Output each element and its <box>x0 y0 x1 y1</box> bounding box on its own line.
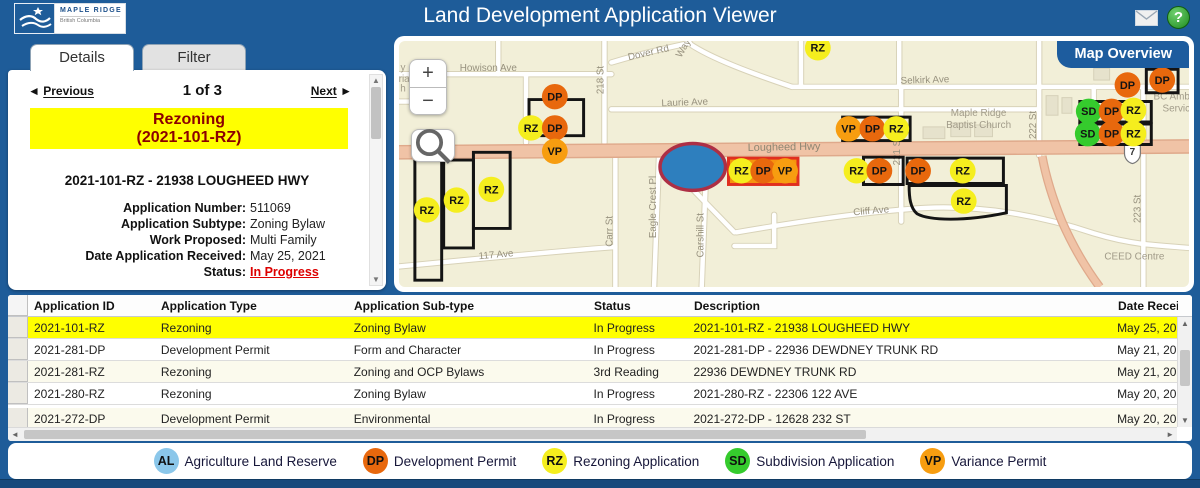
svg-text:DP: DP <box>865 124 880 136</box>
application-address: 2021-101-RZ - 21938 LOUGHEED HWY <box>18 173 356 188</box>
map-search-button[interactable] <box>411 129 455 162</box>
scroll-left-icon[interactable]: ◄ <box>11 430 19 439</box>
map-marker-rz[interactable]: RZ <box>1121 98 1147 123</box>
svg-text:DP: DP <box>547 92 562 104</box>
poi-label: Maple Ridge <box>951 108 1007 119</box>
column-header[interactable]: Status <box>588 295 688 316</box>
table-cell: 2021-272-DP - 12628 232 ST <box>687 408 1111 427</box>
previous-arrow-icon: ◄ <box>28 84 40 98</box>
banner-title: Rezoning <box>30 111 348 129</box>
table-cell: 3rd Reading <box>588 361 688 382</box>
table-cell: Development Permit <box>155 339 348 360</box>
app-header: MAPLE RIDGE British Columbia Land Develo… <box>0 0 1200 38</box>
map-marker-vp[interactable]: VP <box>542 139 568 164</box>
poi-label: CEED Centre <box>1104 252 1165 263</box>
map-overview-button[interactable]: Map Overview <box>1057 41 1189 68</box>
street-label: 223 St <box>1132 195 1143 223</box>
map-marker-rz[interactable]: RZ <box>844 158 870 183</box>
row-selector[interactable] <box>8 339 28 360</box>
legend-label: Subdivision Application <box>756 454 894 469</box>
field-value: Zoning Bylaw <box>250 216 356 232</box>
map-marker-rz[interactable]: RZ <box>883 116 909 141</box>
street-label: 222 St <box>1028 111 1039 139</box>
table-cell: Development Permit <box>155 408 348 427</box>
highway-7-label: 7 <box>1130 147 1136 158</box>
field-label: Application Number: <box>14 200 246 216</box>
table-vscroll-thumb[interactable] <box>1180 350 1190 386</box>
banner-id: (2021-101-RZ) <box>30 129 348 147</box>
svg-text:RZ: RZ <box>811 43 826 55</box>
previous-button[interactable]: ◄ Previous <box>28 84 94 98</box>
table-cell: 2021-101-RZ <box>28 317 155 338</box>
street-label: Selkirk Ave <box>900 74 950 87</box>
svg-text:RZ: RZ <box>955 166 970 178</box>
table-cell: 2021-281-DP - 22936 DEWDNEY TRUNK RD <box>687 339 1111 360</box>
selected-parcel-ellipse[interactable] <box>660 144 726 191</box>
application-field-row: Application Subtype:Zoning Bylaw <box>14 216 356 232</box>
svg-text:DP: DP <box>910 166 925 178</box>
table-vertical-scrollbar[interactable]: ▲ ▼ <box>1177 317 1192 427</box>
table-hscroll-thumb[interactable] <box>24 430 866 439</box>
field-label: Date Application Received: <box>14 248 246 264</box>
legend-label: Development Permit <box>394 454 516 469</box>
street-label: Lougheed Hwy <box>748 141 822 154</box>
svg-text:SD: SD <box>1080 129 1095 141</box>
svg-text:VP: VP <box>548 146 563 158</box>
table-row[interactable]: 2021-281-RZRezoningZoning and OCP Bylaws… <box>8 361 1177 383</box>
table-cell: In Progress <box>588 383 688 404</box>
legend-label: Variance Permit <box>951 454 1046 469</box>
table-cell: 2021-281-DP <box>28 339 155 360</box>
table-cell: Zoning Bylaw <box>348 383 588 404</box>
table-row[interactable]: 2021-272-DPDevelopment PermitEnvironment… <box>8 408 1177 427</box>
maple-ridge-logo-icon <box>14 3 54 34</box>
svg-text:RZ: RZ <box>1126 105 1141 117</box>
header-gutter <box>8 295 28 316</box>
svg-text:SD: SD <box>1081 106 1096 118</box>
poi-label: Service <box>1163 103 1189 114</box>
maple-ridge-logo: MAPLE RIDGE British Columbia <box>14 3 126 34</box>
table-cell: May 20, 2021 <box>1111 408 1177 427</box>
table-cell: May 21, 2021 <box>1111 339 1177 360</box>
legend-marker-icon: SD <box>725 448 750 474</box>
map-legend: ALAgriculture Land ReserveDPDevelopment … <box>8 443 1192 479</box>
bottom-strip <box>0 479 1200 488</box>
map-marker-dp[interactable]: DP <box>1149 67 1175 92</box>
table-row[interactable]: 2021-280-RZRezoningZoning BylawIn Progre… <box>8 383 1177 405</box>
svg-text:RZ: RZ <box>849 166 864 178</box>
field-value-status[interactable]: In Progress <box>250 264 356 280</box>
map-marker-sd[interactable]: SD <box>1075 121 1101 146</box>
details-card: ◄ Previous 1 of 3 Next ► Rezoning (2021-… <box>8 70 386 290</box>
map-marker-dp[interactable]: DP <box>1115 72 1141 97</box>
street-label: Laurie Ave <box>661 97 709 110</box>
map-marker-sd[interactable]: SD <box>1076 99 1102 124</box>
application-field-row: Status:In Progress <box>14 264 356 280</box>
table-cell: Rezoning <box>155 383 348 404</box>
table-cell: May 25, 2021 <box>1111 317 1177 338</box>
table-cell: 22936 DEWDNEY TRUNK RD <box>687 361 1111 382</box>
field-value: May 25, 2021 <box>250 248 356 264</box>
application-field-row: Work Proposed:Multi Family <box>14 232 356 248</box>
tab-details[interactable]: Details <box>30 44 134 71</box>
svg-text:VP: VP <box>778 166 793 178</box>
map-marker-vp[interactable]: VP <box>772 158 798 183</box>
map-marker-dp[interactable]: DP <box>866 158 892 183</box>
map-marker-vp[interactable]: VP <box>836 116 862 141</box>
table-cell: Environmental <box>348 408 588 427</box>
next-arrow-icon: ► <box>340 84 352 98</box>
page-title: Land Development Application Viewer <box>423 4 776 28</box>
field-label: Status: <box>14 264 246 280</box>
table-cell: Rezoning <box>155 361 348 382</box>
selected-application-banner: Rezoning (2021-101-RZ) <box>30 108 348 149</box>
map-marker-rz[interactable]: RZ <box>951 188 977 213</box>
legend-item-vp: VPVariance Permit <box>920 448 1046 474</box>
table-cell: 2021-101-RZ - 21938 LOUGHEED HWY <box>687 317 1111 338</box>
legend-item-dp: DPDevelopment Permit <box>363 448 516 474</box>
map-marker-dp[interactable]: DP <box>905 158 931 183</box>
highway-7-shield: 7 <box>1124 144 1140 163</box>
table-row[interactable]: 2021-101-RZRezoningZoning BylawIn Progre… <box>8 317 1177 339</box>
table-body: 2021-101-RZRezoningZoning BylawIn Progre… <box>8 317 1177 427</box>
poi-label: y <box>400 62 405 73</box>
poi-label: Baptist Church <box>946 120 1011 131</box>
table-row[interactable]: 2021-281-DPDevelopment PermitForm and Ch… <box>8 339 1177 361</box>
svg-text:DP: DP <box>1104 106 1119 118</box>
column-header[interactable]: Date Received <box>1112 295 1178 316</box>
table-cell: Zoning Bylaw <box>348 317 588 338</box>
svg-text:DP: DP <box>872 166 887 178</box>
scroll-down-icon[interactable]: ▼ <box>1178 416 1192 425</box>
row-selector[interactable] <box>8 361 28 382</box>
table-cell: 2021-281-RZ <box>28 361 155 382</box>
poi-label: h <box>400 84 406 95</box>
svg-text:DP: DP <box>1120 80 1135 92</box>
column-header[interactable]: Description <box>688 295 1112 316</box>
street-label: Howison Ave <box>460 63 518 74</box>
table-cell: May 21, 2021 <box>1111 361 1177 382</box>
table-cell: Rezoning <box>155 317 348 338</box>
details-scrollbar[interactable]: ▲ ▼ <box>369 74 383 286</box>
svg-text:DP: DP <box>1104 129 1119 141</box>
svg-text:RZ: RZ <box>1126 129 1141 141</box>
map-marker-rz[interactable]: RZ <box>518 115 544 140</box>
field-label: Application Subtype: <box>14 216 246 232</box>
svg-text:RZ: RZ <box>956 196 971 208</box>
table-cell: May 20, 2021 <box>1111 383 1177 404</box>
map-marker-dp[interactable]: DP <box>860 116 886 141</box>
map-panel: Howison AveDover RdWay218 StLaurie AveSe… <box>394 36 1194 292</box>
map-marker-rz[interactable]: RZ <box>1121 121 1147 146</box>
search-icon <box>412 41 454 269</box>
tab-filter[interactable]: Filter <box>142 44 246 71</box>
table-cell: In Progress <box>588 408 688 427</box>
legend-item-rz: RZRezoning Application <box>542 448 699 474</box>
details-tab-bar: Details Filter <box>30 44 246 71</box>
column-header[interactable]: Application ID <box>28 295 155 316</box>
street-label: Eagle Crest Pl <box>648 176 659 238</box>
table-cell: 2021-280-RZ <box>28 383 155 404</box>
legend-marker-icon: DP <box>363 448 388 474</box>
table-cell: In Progress <box>588 317 688 338</box>
svg-text:RZ: RZ <box>734 166 749 178</box>
legend-label: Rezoning Application <box>573 454 699 469</box>
field-value: 511069 <box>250 200 356 216</box>
application-field-row: Date Application Received:May 25, 2021 <box>14 248 356 264</box>
record-counter: 1 of 3 <box>183 82 222 99</box>
svg-text:DP: DP <box>756 166 771 178</box>
street-label: Carshill St <box>696 213 707 258</box>
legend-label: Agriculture Land Reserve <box>185 454 337 469</box>
logo-title: MAPLE RIDGE <box>60 7 120 14</box>
map-marker-dp[interactable]: DP <box>542 115 568 140</box>
legend-marker-icon: RZ <box>542 448 567 474</box>
mail-icon[interactable] <box>1135 10 1158 26</box>
map-canvas[interactable]: Howison AveDover RdWay218 StLaurie AveSe… <box>399 41 1189 287</box>
legend-item-al: ALAgriculture Land Reserve <box>154 448 337 474</box>
legend-marker-icon: AL <box>154 448 179 474</box>
application-fields: Application Number:511069Application Sub… <box>14 200 356 280</box>
table-cell: 2021-280-RZ - 22306 122 AVE <box>687 383 1111 404</box>
map-marker-rz[interactable]: RZ <box>478 177 504 202</box>
column-header[interactable]: Application Type <box>155 295 348 316</box>
table-header-row: Application IDApplication TypeApplicatio… <box>8 295 1192 317</box>
help-icon[interactable]: ? <box>1167 6 1190 29</box>
table-cell: In Progress <box>588 339 688 360</box>
table-cell: Form and Character <box>348 339 588 360</box>
application-field-row: Application Number:511069 <box>14 200 356 216</box>
logo-subtitle: British Columbia <box>60 16 120 24</box>
map-marker-rz[interactable]: RZ <box>950 158 976 183</box>
svg-text:RZ: RZ <box>484 184 499 196</box>
field-value: Multi Family <box>250 232 356 248</box>
legend-item-sd: SDSubdivision Application <box>725 448 894 474</box>
results-table: Application IDApplication TypeApplicatio… <box>8 295 1192 441</box>
column-header[interactable]: Application Sub-type <box>348 295 588 316</box>
street-label: 218 St <box>595 66 606 94</box>
svg-text:DP: DP <box>1155 75 1170 87</box>
scroll-up-icon[interactable]: ▲ <box>1178 319 1192 328</box>
app-window: MAPLE RIDGE British Columbia Land Develo… <box>0 0 1200 488</box>
svg-text:DP: DP <box>547 123 562 135</box>
svg-text:RZ: RZ <box>889 124 904 136</box>
table-cell: Zoning and OCP Bylaws <box>348 361 588 382</box>
row-selector[interactable] <box>8 317 28 338</box>
scroll-down-icon[interactable]: ▼ <box>370 275 382 284</box>
table-horizontal-scrollbar[interactable]: ◄ ► <box>8 427 1177 441</box>
details-scrollbar-thumb[interactable] <box>371 87 381 139</box>
legend-marker-icon: VP <box>920 448 945 474</box>
svg-text:VP: VP <box>841 124 856 136</box>
row-selector[interactable] <box>8 383 28 404</box>
next-button[interactable]: Next ► <box>311 84 352 98</box>
svg-text:RZ: RZ <box>524 123 539 135</box>
map-marker-dp[interactable]: DP <box>542 84 568 109</box>
table-cell: 2021-272-DP <box>28 408 155 427</box>
field-label: Work Proposed: <box>14 232 246 248</box>
scroll-right-icon[interactable]: ► <box>1166 430 1174 439</box>
row-selector[interactable] <box>8 408 28 427</box>
details-panel: Details Filter ◄ Previous 1 of 3 Next ► … <box>8 44 386 290</box>
scroll-up-icon[interactable]: ▲ <box>370 76 382 85</box>
street-label: Carr St <box>604 216 615 247</box>
